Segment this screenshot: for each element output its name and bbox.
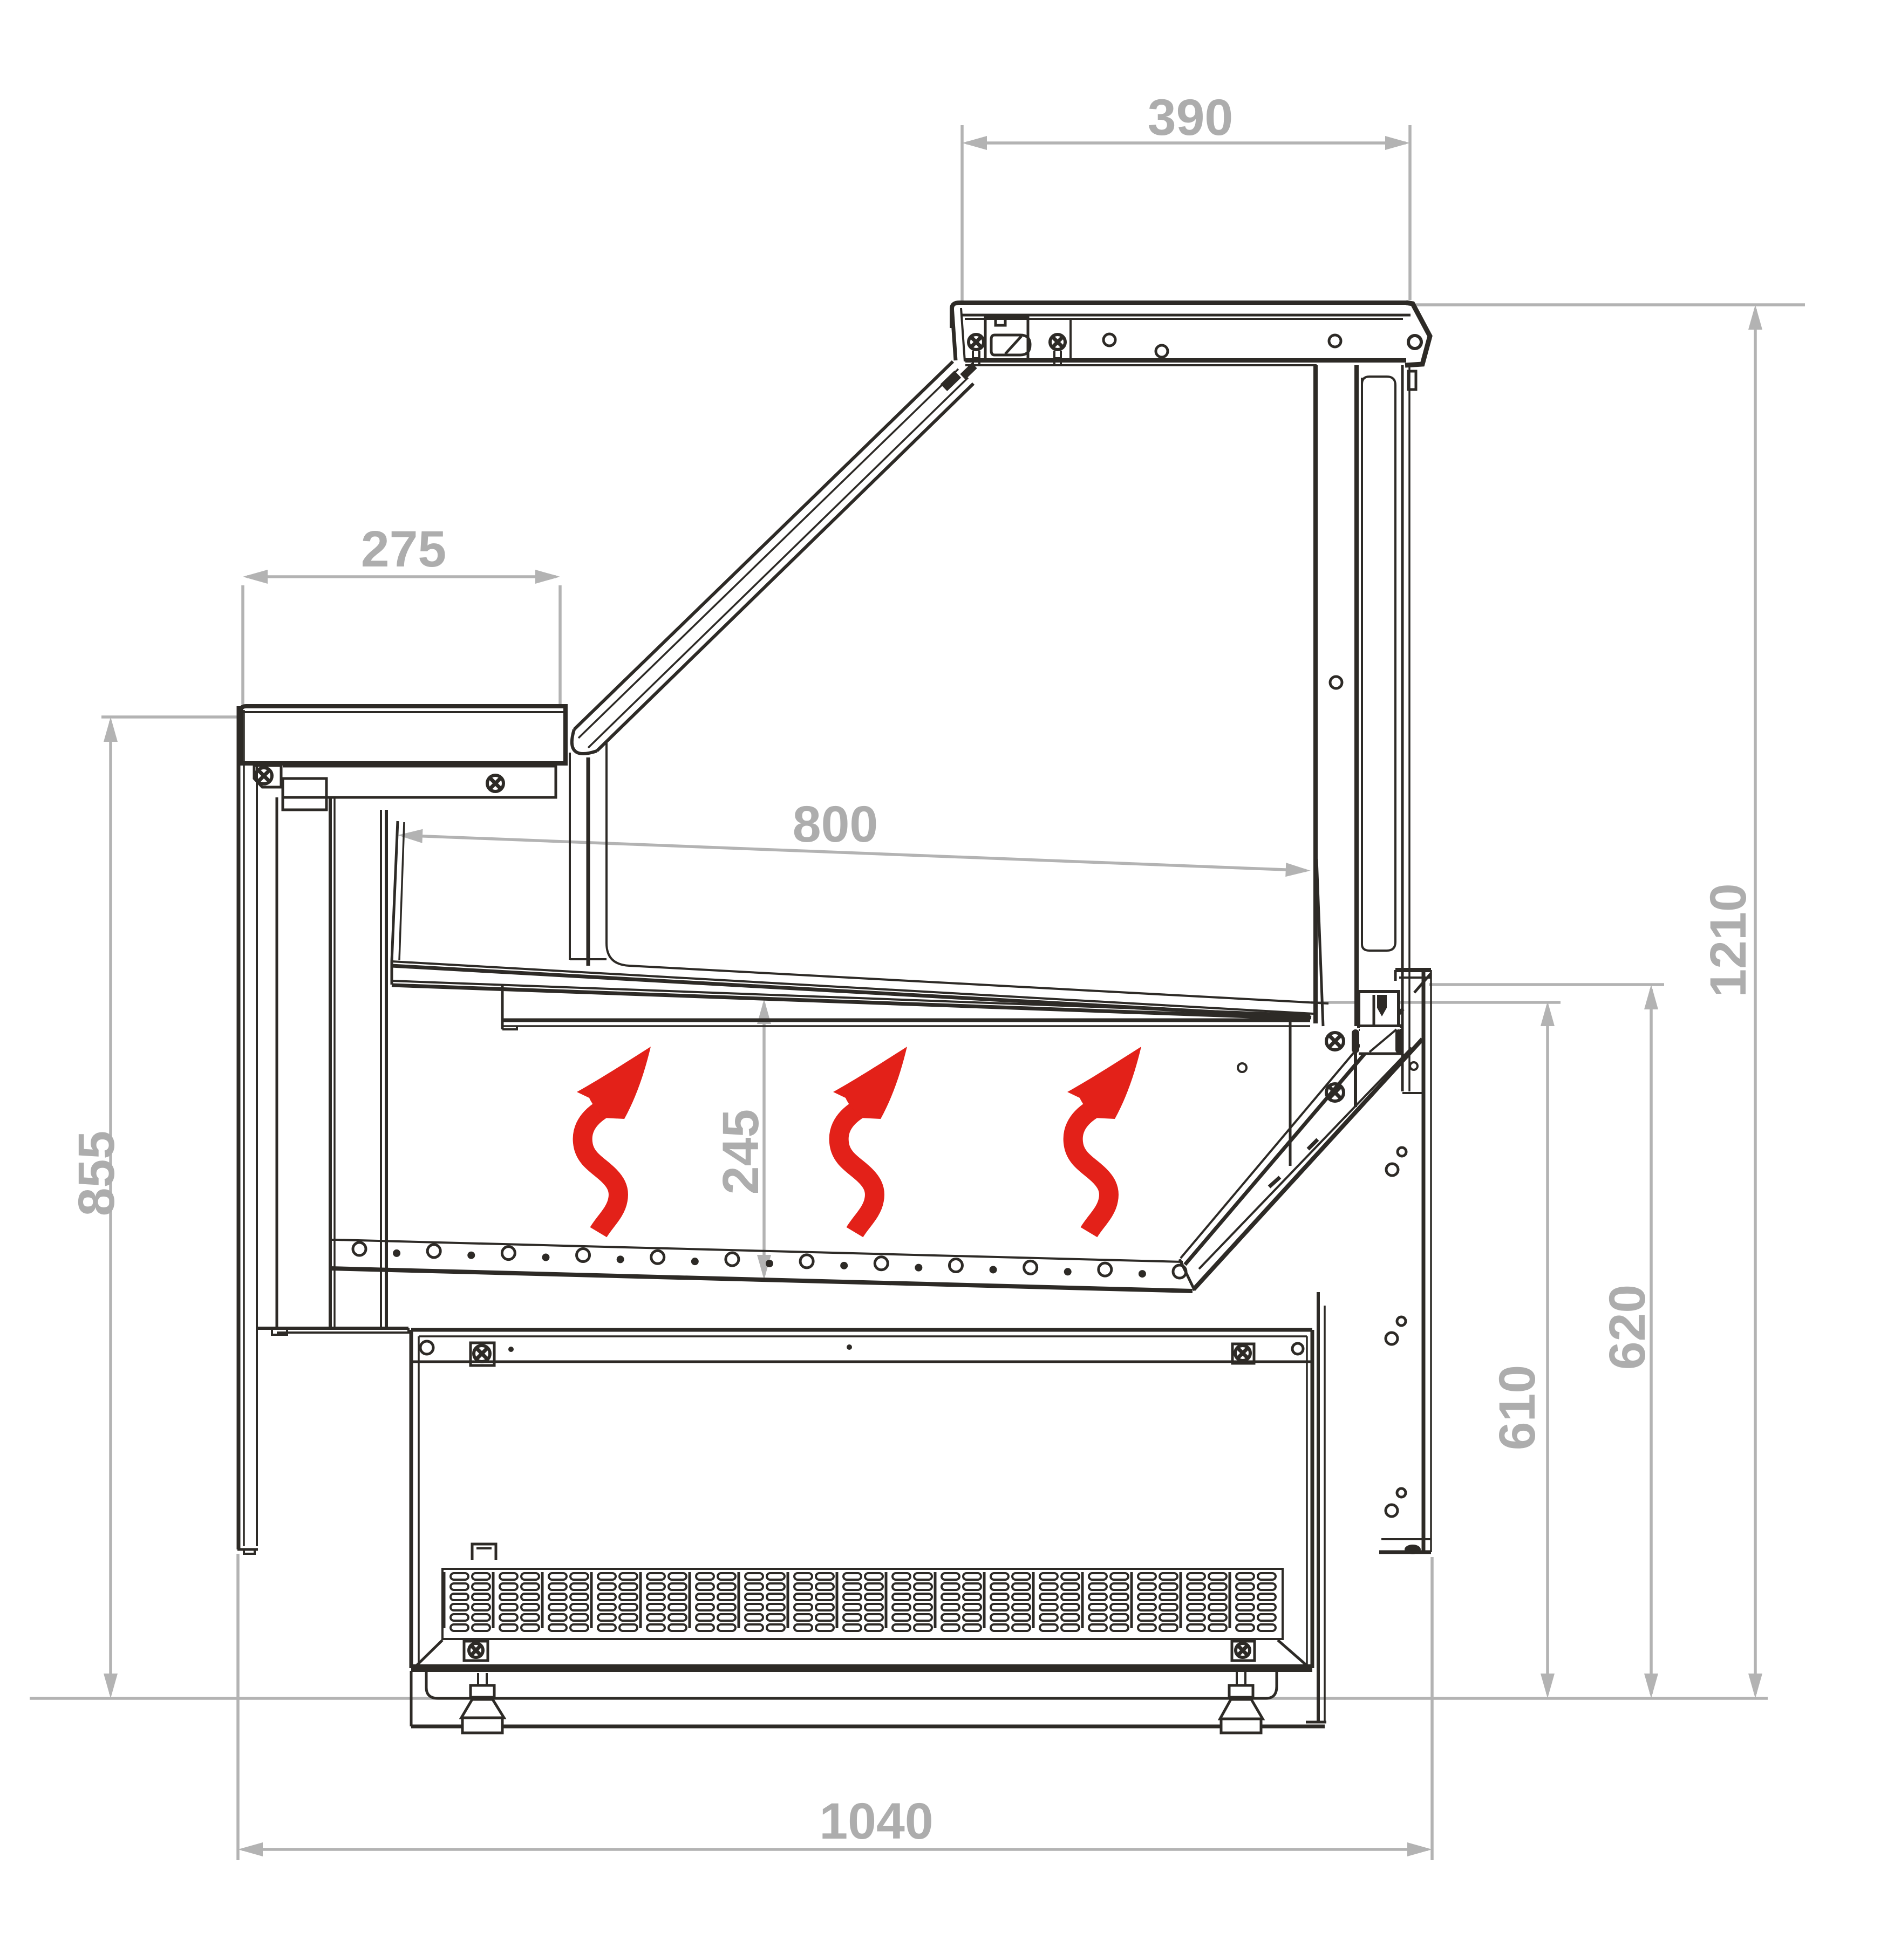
svg-text:610: 610 (1489, 1365, 1546, 1451)
svg-text:620: 620 (1599, 1285, 1656, 1370)
svg-text:800: 800 (793, 796, 878, 853)
svg-text:1040: 1040 (819, 1793, 933, 1850)
svg-text:245: 245 (712, 1109, 769, 1195)
svg-text:390: 390 (1148, 89, 1234, 146)
svg-text:275: 275 (361, 521, 447, 578)
svg-text:1210: 1210 (1700, 883, 1757, 997)
svg-text:855: 855 (68, 1131, 125, 1217)
